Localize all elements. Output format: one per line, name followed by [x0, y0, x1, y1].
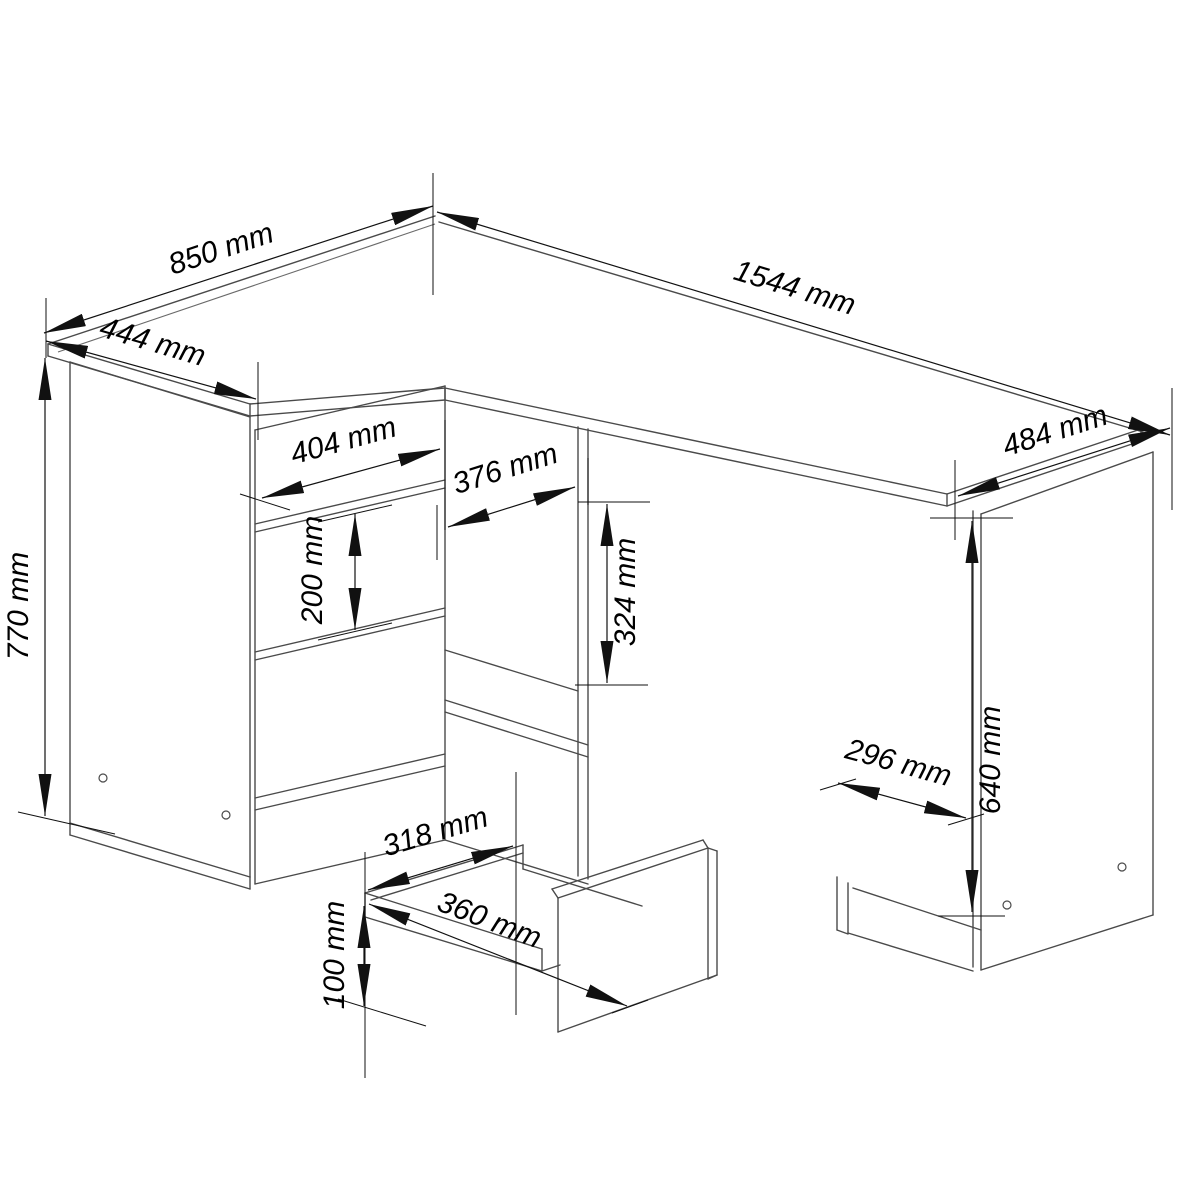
- dimension-label-middle-drawer-height: 200 mm: [296, 516, 329, 625]
- corner-desk-dimension-drawing: 850 mm 1544 mm 444 mm 484 mm 770 mm 404 …: [0, 0, 1200, 1200]
- dimension-label-right-cabinet-height: 640 mm: [974, 706, 1007, 814]
- technical-drawing-page: 850 mm 1544 mm 444 mm 484 mm 770 mm 404 …: [0, 0, 1200, 1200]
- dimension-label-desk-total-height: 770 mm: [2, 552, 35, 660]
- dimension-label-drawer-box-height: 100 mm: [318, 901, 351, 1009]
- drawing-background: [0, 0, 1200, 1200]
- dimension-label-knee-niche-height: 324 mm: [609, 538, 642, 646]
